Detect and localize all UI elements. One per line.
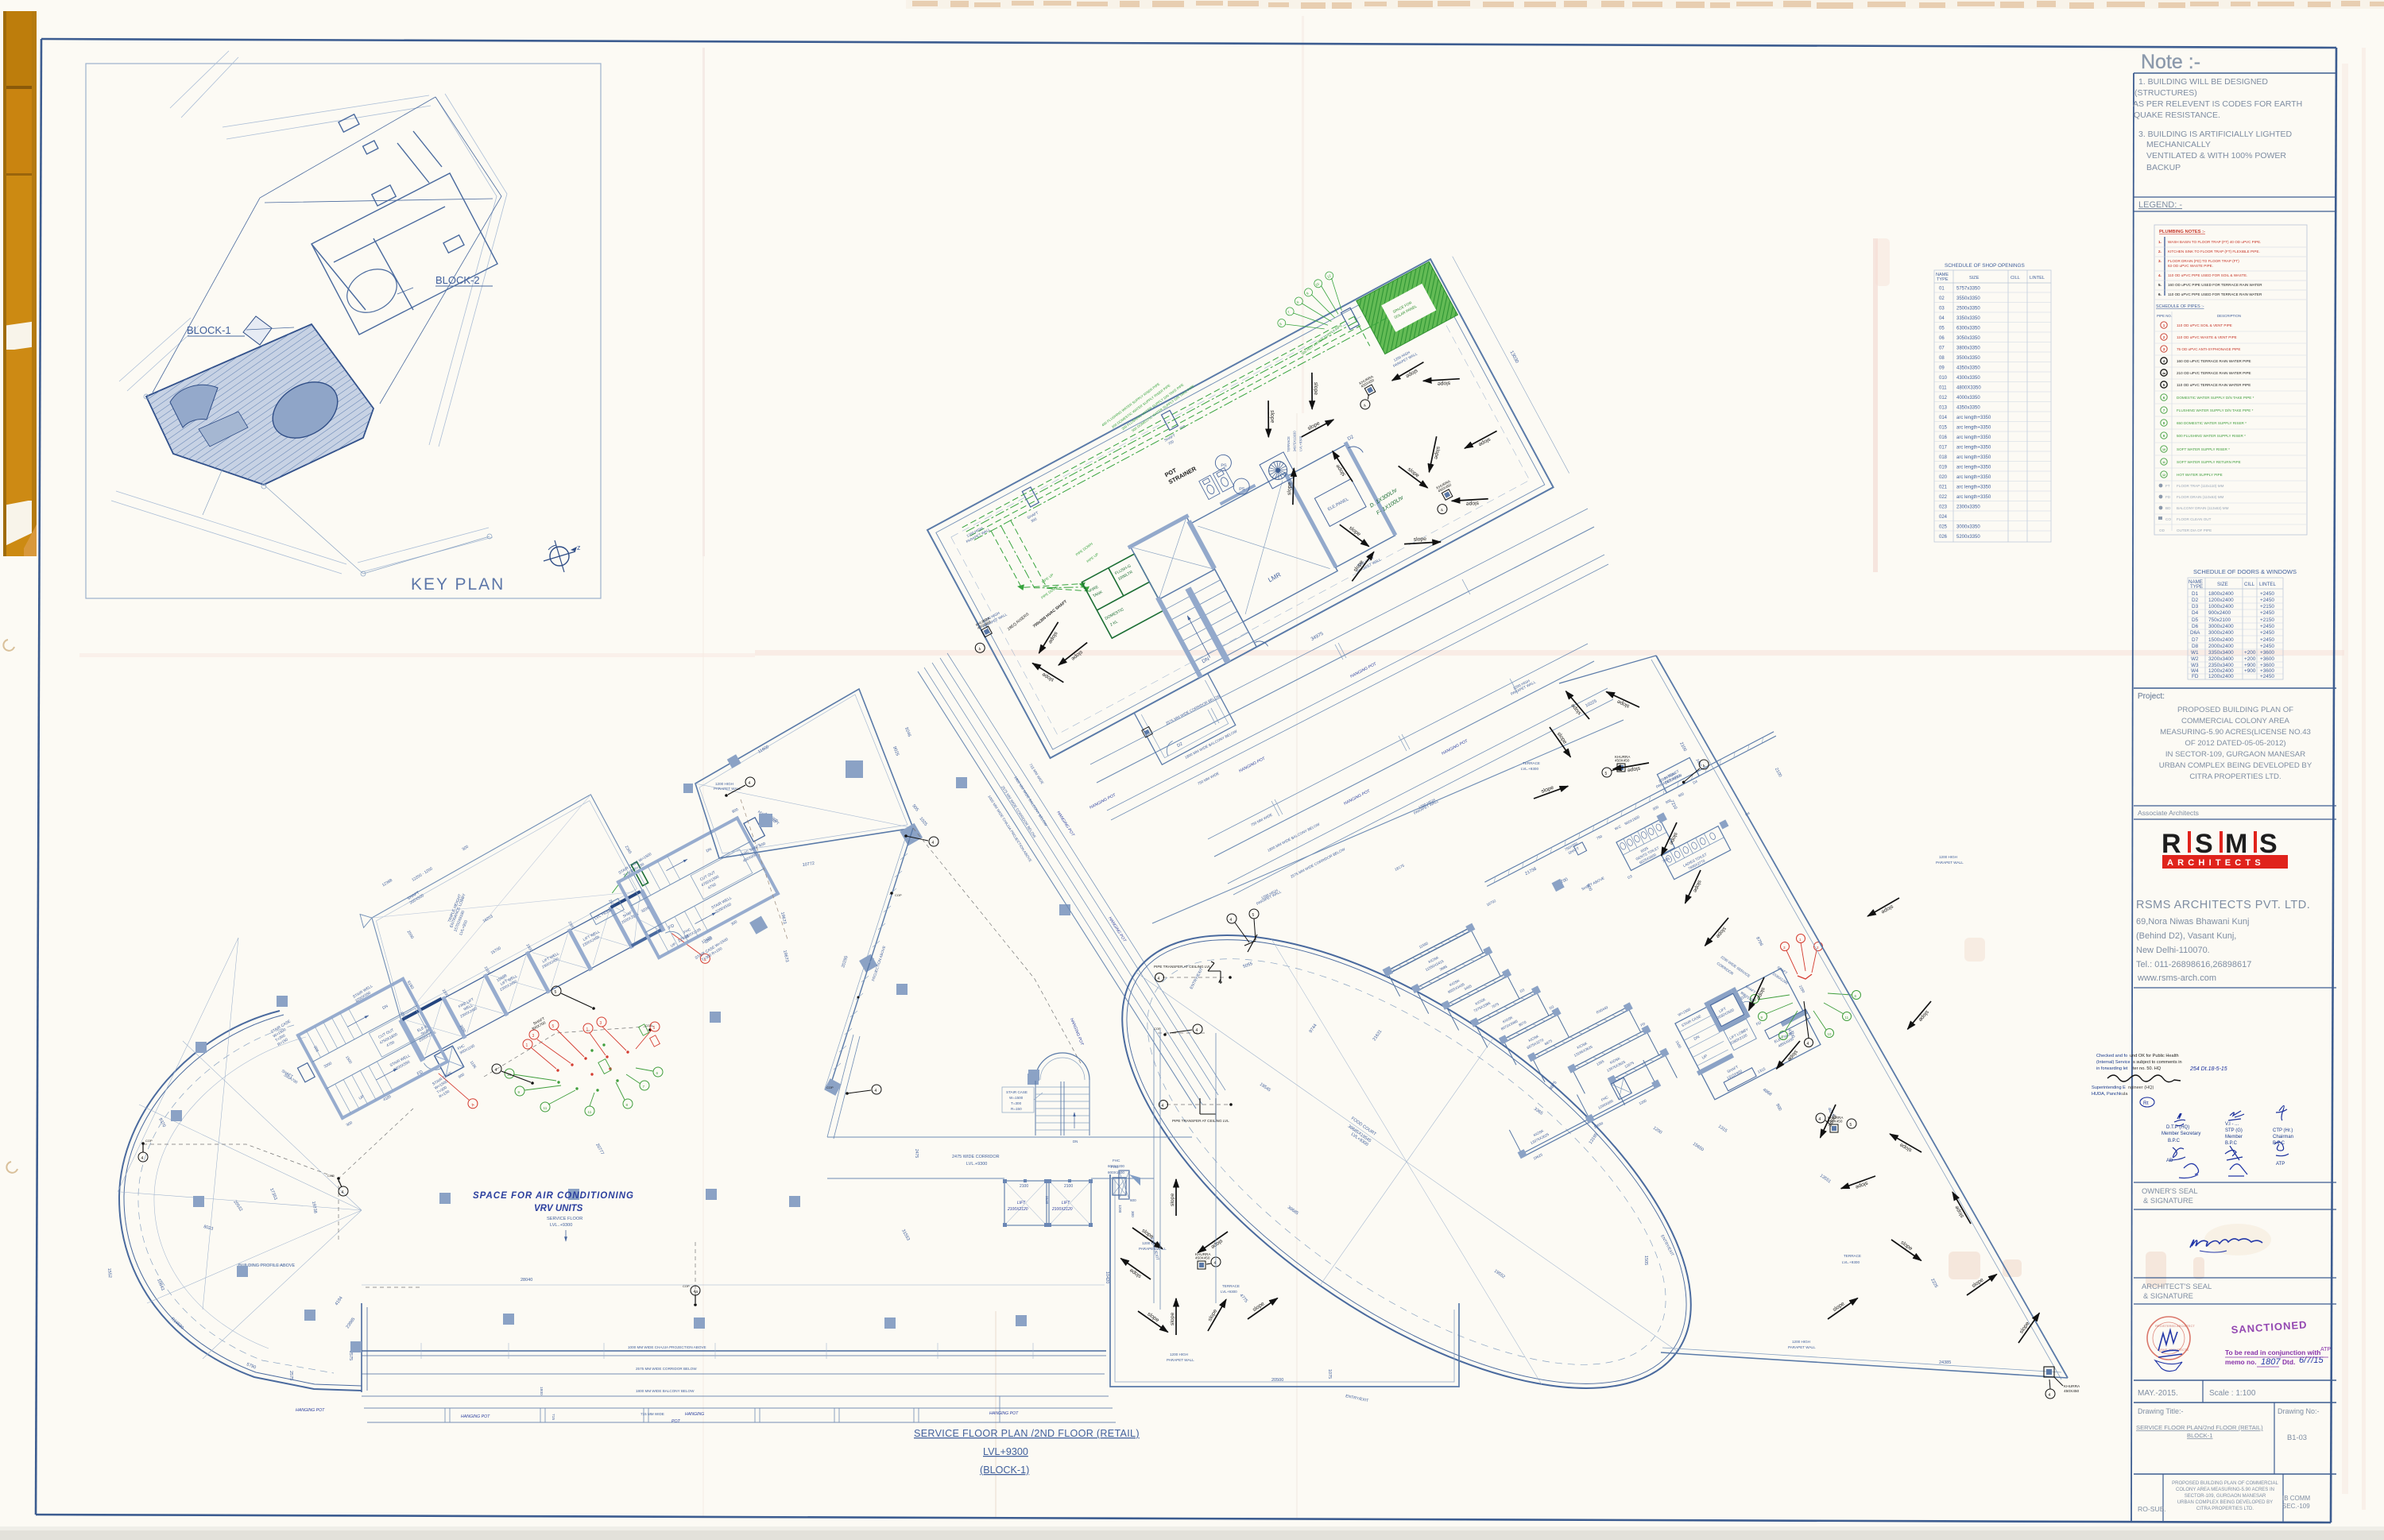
svg-text:LEGEND: -: LEGEND: - [2138, 200, 2182, 210]
svg-text:3550x3350: 3550x3350 [1956, 296, 1980, 301]
svg-text:2100X2120: 2100X2120 [1051, 1207, 1073, 1212]
svg-text:1807: 1807 [2261, 1357, 2281, 1367]
svg-text:Rt: Rt [2143, 1101, 2149, 1106]
svg-text:023: 023 [1939, 505, 1948, 510]
svg-text:OD: OD [2159, 528, 2165, 532]
svg-text:FD: FD [2192, 674, 2199, 679]
svg-text:1200 HIGH: 1200 HIGH [715, 782, 733, 786]
svg-text:20500: 20500 [1271, 1378, 1283, 1383]
svg-text:TERRACE: TERRACE [1222, 1284, 1240, 1288]
svg-text:4a: 4a [694, 1290, 699, 1294]
svg-text:4800X3350: 4800X3350 [1956, 386, 1981, 391]
svg-text:2100: 2100 [1020, 1184, 1028, 1189]
svg-text:ATP: ATP [2276, 1162, 2285, 1167]
svg-text:SOFT WATER SUPPLY RETURN PIPE: SOFT WATER SUPPLY RETURN PIPE [2177, 460, 2241, 464]
svg-text:ARCHITECT'S SEAL: ARCHITECT'S SEAL [2142, 1282, 2212, 1290]
svg-text:M: M [2225, 829, 2247, 859]
svg-text:1000x2400: 1000x2400 [2208, 604, 2234, 609]
svg-text:12: 12 [2162, 474, 2165, 477]
svg-text:08: 08 [1939, 356, 1945, 361]
svg-text:BD: BD [2165, 506, 2171, 510]
svg-text:OWNER'S SEAL: OWNER'S SEAL [2142, 1186, 2198, 1195]
svg-text:254 Dt.18-5-15: 254 Dt.18-5-15 [2189, 1066, 2227, 1072]
svg-text:7: 7 [643, 1085, 645, 1089]
svg-text:HUDA, Panchk: HUDA, Panchk [2092, 1092, 2122, 1097]
svg-text:715: 715 [551, 1414, 555, 1420]
svg-text:4: 4 [2049, 1393, 2051, 1398]
svg-text:021: 021 [1939, 486, 1948, 490]
svg-text:1200x2400: 1200x2400 [2208, 598, 2234, 603]
svg-text:017: 017 [1939, 446, 1948, 451]
svg-text:TERRACE: TERRACE [1287, 436, 1291, 452]
svg-text:LVL+9300: LVL+9300 [1221, 1290, 1237, 1294]
svg-text:D4: D4 [2192, 610, 2199, 616]
svg-text:VRV UNITS: VRV UNITS [534, 1204, 583, 1213]
svg-text:SERVICE FLOOR: SERVICE FLOOR [547, 1217, 582, 1221]
svg-text:R: R [2161, 829, 2182, 859]
svg-text:& SIGNATURE: & SIGNATURE [2143, 1291, 2193, 1300]
svg-text:ula: ula [2122, 1092, 2128, 1097]
svg-text:DOMESTIC WATER SUPPLY D/N TAKE: DOMESTIC WATER SUPPLY D/N TAKE PIPE * [2177, 396, 2254, 400]
svg-text:1200 HIGH: 1200 HIGH [1170, 1352, 1188, 1356]
svg-text:160 OD uPVC TERRACE RAIN WATER: 160 OD uPVC TERRACE RAIN WATER PIPE [2177, 359, 2251, 363]
svg-text:3500x3350: 3500x3350 [1956, 356, 1980, 361]
svg-text:STP (G): STP (G) [2225, 1128, 2243, 1133]
svg-text:1075: 1075 [1327, 1369, 1332, 1379]
svg-text:019: 019 [1939, 466, 1948, 470]
svg-text:+2450: +2450 [2260, 624, 2274, 629]
svg-text:Checked and fo: Checked and fo [2096, 1054, 2127, 1058]
svg-text:11: 11 [1845, 1016, 1849, 1020]
svg-text:+2450: +2450 [2260, 610, 2274, 616]
svg-text:11: 11 [588, 1110, 592, 1114]
svg-text:Drawing Title:-: Drawing Title:- [2138, 1407, 2184, 1415]
svg-text:BLOCK-2: BLOCK-2 [435, 274, 480, 286]
svg-text:+2450: +2450 [2260, 598, 2274, 603]
svg-text:4: 4 [495, 1068, 497, 1073]
svg-text:4: 4 [1230, 918, 1233, 923]
svg-text:015: 015 [1939, 426, 1948, 431]
svg-text:3: 3 [1783, 946, 1786, 950]
svg-text:+2450: +2450 [2260, 630, 2274, 636]
svg-text:Note :-: Note :- [2141, 51, 2200, 73]
svg-text:4: 4 [749, 781, 751, 786]
svg-text:+2450: +2450 [2260, 674, 2274, 679]
svg-text:600: 600 [1130, 1198, 1136, 1202]
svg-text:s subject to comments in: s subject to comments in [2133, 1060, 2182, 1065]
svg-text:CO: CO [2165, 517, 2171, 521]
svg-text:04: 04 [1939, 316, 1945, 321]
svg-text:(Internal) Service: (Internal) Service [2096, 1060, 2131, 1065]
svg-text:RSMS ARCHITECTS PVT. LTD.: RSMS ARCHITECTS PVT. LTD. [2136, 899, 2310, 911]
svg-text:1.: 1. [2158, 240, 2161, 244]
svg-text:PARAPET WALL: PARAPET WALL [714, 787, 741, 791]
svg-text:DESCRIPTION: DESCRIPTION [2217, 314, 2241, 318]
svg-text:COP: COP [645, 1023, 652, 1027]
svg-text:1552: 1552 [106, 1268, 112, 1279]
svg-text:LVL..+9300: LVL..+9300 [550, 1223, 572, 1228]
svg-text:FD: FD [2165, 495, 2171, 499]
svg-text:025: 025 [1939, 525, 1948, 530]
svg-text:SCHEDULE OF SHOP OPENINGS: SCHEDULE OF SHOP OPENINGS [1945, 263, 2025, 269]
svg-text:arc length+3350: arc length+3350 [1956, 435, 1991, 440]
svg-text:650 DOMESTIC WATER SUPPLY RISE: 650 DOMESTIC WATER SUPPLY RISER * [2177, 421, 2247, 425]
svg-text:HANGING POT: HANGING POT [461, 1414, 490, 1419]
svg-text:KEY PLAN: KEY PLAN [411, 575, 505, 594]
svg-text:9: 9 [518, 1090, 521, 1094]
svg-text:010: 010 [1939, 376, 1948, 381]
svg-text:FLOOR TRAP (110x110) MM: FLOOR TRAP (110x110) MM [2177, 484, 2224, 488]
svg-text:1505: 1505 [1643, 1256, 1648, 1265]
svg-text:4350x3350: 4350x3350 [1956, 406, 1980, 411]
svg-text:110 OD uPVC WASTE & VENT PIPE: 110 OD uPVC WASTE & VENT PIPE [2177, 335, 2237, 339]
svg-text:2575: 2575 [288, 1371, 293, 1380]
svg-text:in forwarding let: in forwarding let [2096, 1066, 2128, 1071]
svg-text:TYPE: TYPE [1937, 277, 1949, 282]
svg-text:PLUMBING NOTES :-: PLUMBING NOTES :- [2159, 230, 2205, 234]
svg-text:LIFT: LIFT [1062, 1201, 1070, 1205]
svg-text:PIPE NO.: PIPE NO. [2157, 314, 2172, 318]
svg-text:FLOOR DRAIN (FD) TO FLOOR TRAP: FLOOR DRAIN (FD) TO FLOOR TRAP (FT) [2168, 259, 2239, 263]
svg-text:B.P.C: B.P.C [2168, 1139, 2181, 1143]
svg-text:PIPE TRANSFER AT CEILING LVL: PIPE TRANSFER AT CEILING LVL [1154, 965, 1211, 969]
svg-text:R=150: R=150 [1011, 1107, 1022, 1111]
svg-text:+900: +900 [2244, 668, 2256, 674]
svg-text:SERVICE FLOOR PLAN /2ND FLOOR: SERVICE FLOOR PLAN /2ND FLOOR (RETAIL) [914, 1428, 1140, 1439]
svg-text:SIZE: SIZE [1969, 276, 1980, 281]
svg-text:1200 HIGH: 1200 HIGH [1792, 1340, 1810, 1344]
svg-text:TERRACE: TERRACE [1844, 1254, 1861, 1258]
svg-text:5: 5 [552, 1024, 555, 1029]
svg-text:SCHEDULE OF DOORS & WINDOW: SCHEDULE OF DOORS & WINDOWS [2193, 568, 2297, 575]
svg-text:Chairman: Chairman [2273, 1135, 2293, 1140]
svg-text:OUTER DIA OF PIPE: OUTER DIA OF PIPE [2177, 528, 2212, 532]
svg-text:und OK for Public Health: und OK for Public Health [2130, 1054, 2179, 1058]
svg-text:2000x2400: 2000x2400 [2208, 644, 2234, 649]
svg-text:6300x3350: 6300x3350 [1956, 327, 1980, 331]
svg-text:arc length+3350: arc length+3350 [1956, 446, 1991, 451]
svg-text:FLOOR CLEAN OUT: FLOOR CLEAN OUT [2177, 517, 2212, 521]
svg-text:D6: D6 [2192, 624, 2199, 629]
svg-text:1000 MM WIDE CHAJJA PROJEC: 1000 MM WIDE CHAJJA PROJECTION ABOVE [628, 1345, 706, 1349]
svg-text:5: 5 [1252, 913, 1255, 918]
svg-text:POT: POT [671, 1419, 680, 1424]
svg-text:LVL.+9300: LVL.+9300 [1521, 767, 1538, 771]
svg-text:IB COMM: IB COMM [2282, 1495, 2310, 1502]
svg-text:BLOCK-1: BLOCK-1 [2187, 1432, 2213, 1439]
svg-text:SOFT WATER SUPPLY RISER *: SOFT WATER SUPPLY RISER * [2177, 447, 2230, 451]
svg-text:2475: 2475 [914, 1149, 919, 1158]
svg-text:3050x3350: 3050x3350 [1956, 336, 1980, 341]
svg-text:3350x3350: 3350x3350 [1956, 316, 1980, 321]
svg-text:LVL+9300: LVL+9300 [983, 1446, 1028, 1457]
svg-text:TERRACE: TERRACE [1523, 761, 1540, 765]
svg-text:+2450: +2450 [2260, 591, 2274, 597]
svg-text:160 OD uPVC PIPE USED FOR TERR: 160 OD uPVC PIPE USED FOR TERRACE RAIN W… [2168, 283, 2262, 287]
svg-text:LIFT: LIFT [1017, 1201, 1026, 1205]
svg-text:KHURRA: KHURRA [2064, 1384, 2080, 1389]
svg-text:W4: W4 [2191, 668, 2199, 674]
svg-text:013: 013 [1939, 406, 1948, 411]
svg-text:COP: COP [327, 1174, 335, 1178]
svg-text:arc length+3350: arc length+3350 [1956, 426, 1991, 431]
svg-text:HANGING POT: HANGING POT [989, 1411, 1019, 1416]
svg-text:(Behind D2), Vasant Kunj,: (Behind D2), Vasant Kunj, [2136, 931, 2236, 941]
svg-text:BLOCK-1: BLOCK-1 [187, 324, 231, 336]
svg-text:900x2400: 900x2400 [2208, 610, 2231, 616]
svg-text:11: 11 [2162, 461, 2165, 464]
svg-text:2100X2120: 2100X2120 [1007, 1207, 1028, 1212]
svg-text:4350x3350: 4350x3350 [1956, 366, 1980, 371]
svg-text:COP: COP [145, 1139, 153, 1143]
svg-text:2.: 2. [2158, 250, 2161, 253]
svg-text:D2: D2 [2192, 598, 2199, 603]
svg-text:210 OD uPVC TERRACE RAIN WATER: 210 OD uPVC TERRACE RAIN WATER PIPE [2177, 371, 2251, 375]
svg-text:& SIGNATURE: & SIGNATURE [2143, 1196, 2193, 1205]
svg-text:memo no.: memo no. [2225, 1358, 2257, 1366]
svg-text:5: 5 [1850, 1123, 1852, 1128]
svg-text:D8: D8 [2192, 644, 2199, 649]
svg-text:110 OD uPVC SOIL & VENT PIPE: 110 OD uPVC SOIL & VENT PIPE [2177, 323, 2232, 327]
svg-text:1200x2400: 1200x2400 [2208, 674, 2234, 679]
svg-text:CILL: CILL [2011, 276, 2020, 281]
svg-text:450X450: 450X450 [2064, 1389, 2080, 1394]
svg-text:75 OD uPVC ANTI-SYPHONAGE PIPE: 75 OD uPVC ANTI-SYPHONAGE PIPE [2177, 347, 2240, 351]
svg-text:D.T.P (HQ): D.T.P (HQ) [2166, 1125, 2189, 1130]
svg-text:W2: W2 [2191, 656, 2199, 662]
svg-text:1500x2400: 1500x2400 [2208, 637, 2234, 643]
svg-text:600X1200: 600X1200 [1108, 1164, 1124, 1168]
svg-text:Drawing No:-: Drawing No:- [2278, 1407, 2320, 1415]
svg-text:FLUSHING WATER SUPPLY D/N TAKE: FLUSHING WATER SUPPLY D/N TAKE PIPE * [2177, 408, 2254, 412]
svg-text:2300x3350: 2300x3350 [1956, 505, 1980, 510]
svg-text:VENTILATED & WITH 100% PO: VENTILATED & WITH 100% POWER [2146, 151, 2286, 161]
svg-text:PROPOSED BUILDING PLAN OF: PROPOSED BUILDING PLAN OF COMMERCIAL [2172, 1481, 2278, 1486]
svg-text:600X1200: 600X1200 [1108, 1170, 1124, 1174]
svg-text:110 OD uPVC PIPE USED FOR TERR: 110 OD uPVC PIPE USED FOR TERRACE RAIN W… [2168, 292, 2262, 296]
svg-text:5757x3350: 5757x3350 [1956, 287, 1980, 292]
svg-text:01: 01 [1939, 287, 1945, 292]
svg-text:COP: COP [895, 893, 902, 897]
svg-text:3. BUILDING IS ARTIFICIALLY: 3. BUILDING IS ARTIFICIALLY LIGHTED [2138, 130, 2293, 139]
svg-text:+200: +200 [2244, 650, 2256, 656]
svg-text:STAIR CASE: STAIR CASE [1006, 1090, 1028, 1094]
svg-text:5: 5 [653, 1026, 656, 1031]
svg-text:LINTEL: LINTEL [2259, 582, 2277, 587]
svg-text:3.: 3. [2158, 259, 2161, 263]
svg-text:4.: 4. [2158, 273, 2161, 277]
svg-text:RSMS ARCHITECTS: RSMS ARCHITECTS [2158, 1348, 2189, 1352]
svg-text:012: 012 [1939, 396, 1948, 400]
svg-text:arc length+3350: arc length+3350 [1956, 466, 1991, 470]
svg-text:WASH BASIN TO FLOOR TRAP (FT): WASH BASIN TO FLOOR TRAP (FT) 40 OD uPVC… [2168, 240, 2261, 244]
svg-text:B.P.C: B.P.C [2225, 1141, 2238, 1146]
svg-text:07: 07 [1939, 346, 1945, 351]
svg-text:018: 018 [1939, 455, 1948, 460]
svg-text:W=1500: W=1500 [1009, 1096, 1024, 1100]
svg-text:SECTOR-109, GURGAON MANESAR: SECTOR-109, GURGAON MANESAR [2185, 1494, 2266, 1499]
svg-text:1: 1 [586, 1027, 589, 1032]
svg-text:4: 4 [1819, 1117, 1821, 1122]
svg-text:PARAPET WALL: PARAPET WALL [1139, 1247, 1167, 1251]
svg-text:3200x3400: 3200x3400 [2208, 656, 2234, 662]
svg-text:+3600: +3600 [2260, 656, 2274, 662]
svg-text:4: 4 [141, 1156, 144, 1161]
svg-text:CITRA PROPERTIES LTD.: CITRA PROPERTIES LTD. [2189, 772, 2281, 781]
svg-text:HANGING: HANGING [685, 1412, 704, 1417]
svg-text:Member Secretary: Member Secretary [2161, 1132, 2200, 1136]
svg-text:2475 WIDE CORRIDOR: 2475 WIDE CORRIDOR [952, 1155, 1000, 1159]
svg-text:6.: 6. [2158, 292, 2161, 296]
svg-text:TYPE: TYPE [2190, 584, 2203, 590]
svg-text:3000x2400: 3000x2400 [2208, 630, 2234, 636]
svg-text:2575 MM WIDE CORRIDOR BELO: 2575 MM WIDE CORRIDOR BELOW [636, 1367, 697, 1371]
svg-text:OF 2012 DATED-05-05-2012): OF 2012 DATED-05-05-2012) [2185, 739, 2285, 748]
svg-text:750x2100: 750x2100 [2208, 617, 2231, 623]
svg-text:110 OD uPVC PIPE USED FOR SOIL: 110 OD uPVC PIPE USED FOR SOIL & WASTE. [2168, 273, 2247, 277]
svg-text:LVL.+9300: LVL.+9300 [966, 1162, 987, 1167]
svg-text:020: 020 [1939, 475, 1948, 480]
svg-text:T=300: T=300 [1011, 1101, 1022, 1105]
svg-text:S: S [2259, 829, 2278, 859]
svg-text:HANGING POT: HANGING POT [296, 1408, 325, 1413]
svg-text:+3600: +3600 [2260, 668, 2274, 674]
svg-text:COLONY AREA MEASURING-5.90: COLONY AREA MEASURING-5.90 ACRES IN [2176, 1488, 2274, 1492]
svg-text:3: 3 [532, 1034, 535, 1039]
svg-text:HOT WATER SUPPLY PIPE: HOT WATER SUPPLY PIPE [2177, 473, 2223, 477]
svg-text:6: 6 [656, 1071, 659, 1075]
svg-text:+200: +200 [2244, 656, 2256, 662]
svg-text:REGISTERED ARCHITECT: REGISTERED ARCHITECT [2155, 1324, 2195, 1328]
svg-text:SEC.-109: SEC.-109 [2282, 1503, 2310, 1510]
svg-text:3800x3350: 3800x3350 [1956, 346, 1980, 351]
svg-text:PS: PS [1221, 463, 1227, 468]
svg-text:ter no. 50. HQ: ter no. 50. HQ [2133, 1066, 2161, 1071]
svg-text:2100: 2100 [1064, 1184, 1073, 1189]
svg-text:1: 1 [1799, 938, 1802, 942]
svg-text:BALCONY DRAIN (113x63) MM: BALCONY DRAIN (113x63) MM [2177, 506, 2229, 510]
svg-text:PARAPET WALL: PARAPET WALL [1167, 1358, 1194, 1362]
svg-text:715 MM WIDE: 715 MM WIDE [641, 1412, 664, 1416]
svg-text:D5: D5 [2192, 617, 2199, 623]
svg-text:AS PER RELEVENT IS CODES FOR E: AS PER RELEVENT IS CODES FOR EARTH [2133, 99, 2302, 109]
svg-text:1200: 1200 [1118, 1205, 1122, 1213]
svg-text:110 OD uPVC TERRACE RAIN WATER: 110 OD uPVC TERRACE RAIN WATER PIPE [2177, 383, 2250, 387]
svg-text:z: z [577, 544, 581, 551]
svg-text:PARAPET WALL: PARAPET WALL [1788, 1345, 1816, 1349]
svg-text:+2150: +2150 [2260, 617, 2274, 623]
svg-text:3000x2400: 3000x2400 [2208, 624, 2234, 629]
svg-text:2500x3350: 2500x3350 [1956, 307, 1980, 311]
svg-text:+2450: +2450 [2260, 644, 2274, 649]
svg-text:5: 5 [1605, 772, 1608, 776]
svg-text:300: 300 [1131, 1211, 1135, 1217]
svg-text:24385: 24385 [1939, 1360, 1951, 1365]
svg-text:(STRUCTURES): (STRUCTURES) [2134, 88, 2197, 98]
svg-text:CILL: CILL [2244, 582, 2255, 587]
svg-text:1200x2400: 1200x2400 [2208, 668, 2234, 674]
svg-text:1200 HIGH: 1200 HIGH [1939, 855, 1957, 859]
svg-text:FLOOR DRAIN (110x63) MM: FLOOR DRAIN (110x63) MM [2177, 495, 2224, 499]
svg-text:4: 4 [1196, 1028, 1198, 1033]
svg-text:D1: D1 [2192, 591, 2199, 597]
svg-text:URBAN COMPLEX BEING DEVELOP: URBAN COMPLEX BEING DEVELOPED BY [2159, 761, 2312, 770]
svg-text:2: 2 [1817, 946, 1819, 950]
svg-text:11: 11 [544, 1106, 548, 1110]
svg-text:CITRA PROPERTIES LTD.: CITRA PROPERTIES LTD. [2196, 1507, 2254, 1511]
svg-text:PARAPET WALL: PARAPET WALL [1936, 861, 1964, 865]
svg-text:022: 022 [1939, 495, 1948, 500]
svg-text:D3: D3 [2192, 604, 2199, 609]
svg-text:arc length+3350: arc length+3350 [1956, 486, 1991, 490]
svg-text:W1: W1 [2191, 650, 2199, 656]
svg-text:COP: COP [826, 1085, 834, 1089]
svg-text:PS: PS [1239, 487, 1245, 492]
svg-text:(BLOCK-1): (BLOCK-1) [980, 1465, 1029, 1476]
svg-text:03: 03 [1939, 307, 1945, 311]
svg-text:1800x2400: 1800x2400 [2208, 591, 2234, 597]
svg-text:4: 4 [1807, 1042, 1809, 1047]
svg-text:500 FLUSHING WATER SUPPLY RISE: 500 FLUSHING WATER SUPPLY RISER * [2177, 434, 2246, 438]
svg-text:8: 8 [626, 1103, 629, 1107]
svg-text:ARCHITECTS: ARCHITECTS [2167, 858, 2265, 868]
svg-text:SIZE: SIZE [2217, 582, 2228, 587]
svg-text:026: 026 [1939, 535, 1948, 540]
svg-text:69,Nora Niwas Bhawani Kunj: 69,Nora Niwas Bhawani Kunj [2136, 917, 2249, 927]
svg-text:arc length+3350: arc length+3350 [1956, 495, 1991, 500]
svg-text:02: 02 [1939, 296, 1945, 301]
svg-text:arc length+3350: arc length+3350 [1956, 455, 1991, 460]
svg-text:09: 09 [1939, 366, 1945, 371]
svg-text:ngineer (HQ): ngineer (HQ) [2128, 1085, 2154, 1090]
svg-text:D6A: D6A [2190, 630, 2200, 636]
svg-text:4: 4 [875, 1089, 877, 1093]
svg-text:Superintending E: Superintending E [2092, 1085, 2126, 1090]
svg-text:Scale : 1:100: Scale : 1:100 [2209, 1389, 2256, 1398]
svg-text:www.rsms-arch.com: www.rsms-arch.com [2137, 973, 2216, 983]
svg-text:+2450: +2450 [2260, 637, 2274, 643]
svg-text:Tel.: 011-26898616,26898617: Tel.: 011-26898616,26898617 [2136, 960, 2251, 969]
svg-text:4: 4 [1158, 977, 1160, 981]
svg-text:+2150: +2150 [2260, 604, 2274, 609]
svg-text:CTP (Hr.): CTP (Hr.) [2273, 1128, 2293, 1133]
svg-text:+3600: +3600 [2260, 650, 2274, 656]
svg-text:5200x3350: 5200x3350 [1956, 535, 1980, 540]
svg-text:3350x3400: 3350x3400 [2208, 650, 2234, 656]
svg-text:016: 016 [1939, 435, 1948, 440]
svg-text:4000x3350: 4000x3350 [1956, 396, 1980, 400]
svg-text:KITCHEN SINK TO FLOOR TRAP (FT: KITCHEN SINK TO FLOOR TRAP (FT) FLEXIBLE… [2168, 250, 2260, 253]
svg-text:PROPOSED BUILDING PLAN OF: PROPOSED BUILDING PLAN OF [2177, 706, 2293, 714]
svg-text:SERVICE FLOOR PLAN/2nd FLOO: SERVICE FLOOR PLAN/2nd FLOOR (RETAIL) [2136, 1424, 2263, 1431]
svg-text:5: 5 [555, 990, 557, 995]
svg-text:05: 05 [1939, 327, 1945, 331]
svg-text:4300x3350: 4300x3350 [1956, 376, 1980, 381]
svg-text:1. BUILDING WILL BE DESIGN: 1. BUILDING WILL BE DESIGNED [2138, 77, 2268, 87]
svg-text:011: 011 [1939, 386, 1947, 391]
svg-text:5.: 5. [2158, 283, 2161, 287]
svg-text:ATP: ATP [2320, 1347, 2331, 1352]
svg-text:1800: 1800 [539, 1387, 544, 1395]
svg-text:S: S [2195, 829, 2213, 859]
svg-text:Dtd.: Dtd. [2282, 1358, 2295, 1366]
svg-text:B1-03: B1-03 [2287, 1433, 2307, 1441]
svg-text:3000x3350: 3000x3350 [1956, 525, 1980, 530]
svg-text:4: 4 [932, 841, 935, 845]
svg-text:1: 1 [526, 1043, 528, 1048]
svg-text:10420: 10420 [1105, 1271, 1109, 1283]
svg-text:SCHEDULE OF PIPES :-: SCHEDULE OF PIPES :- [2156, 304, 2204, 309]
